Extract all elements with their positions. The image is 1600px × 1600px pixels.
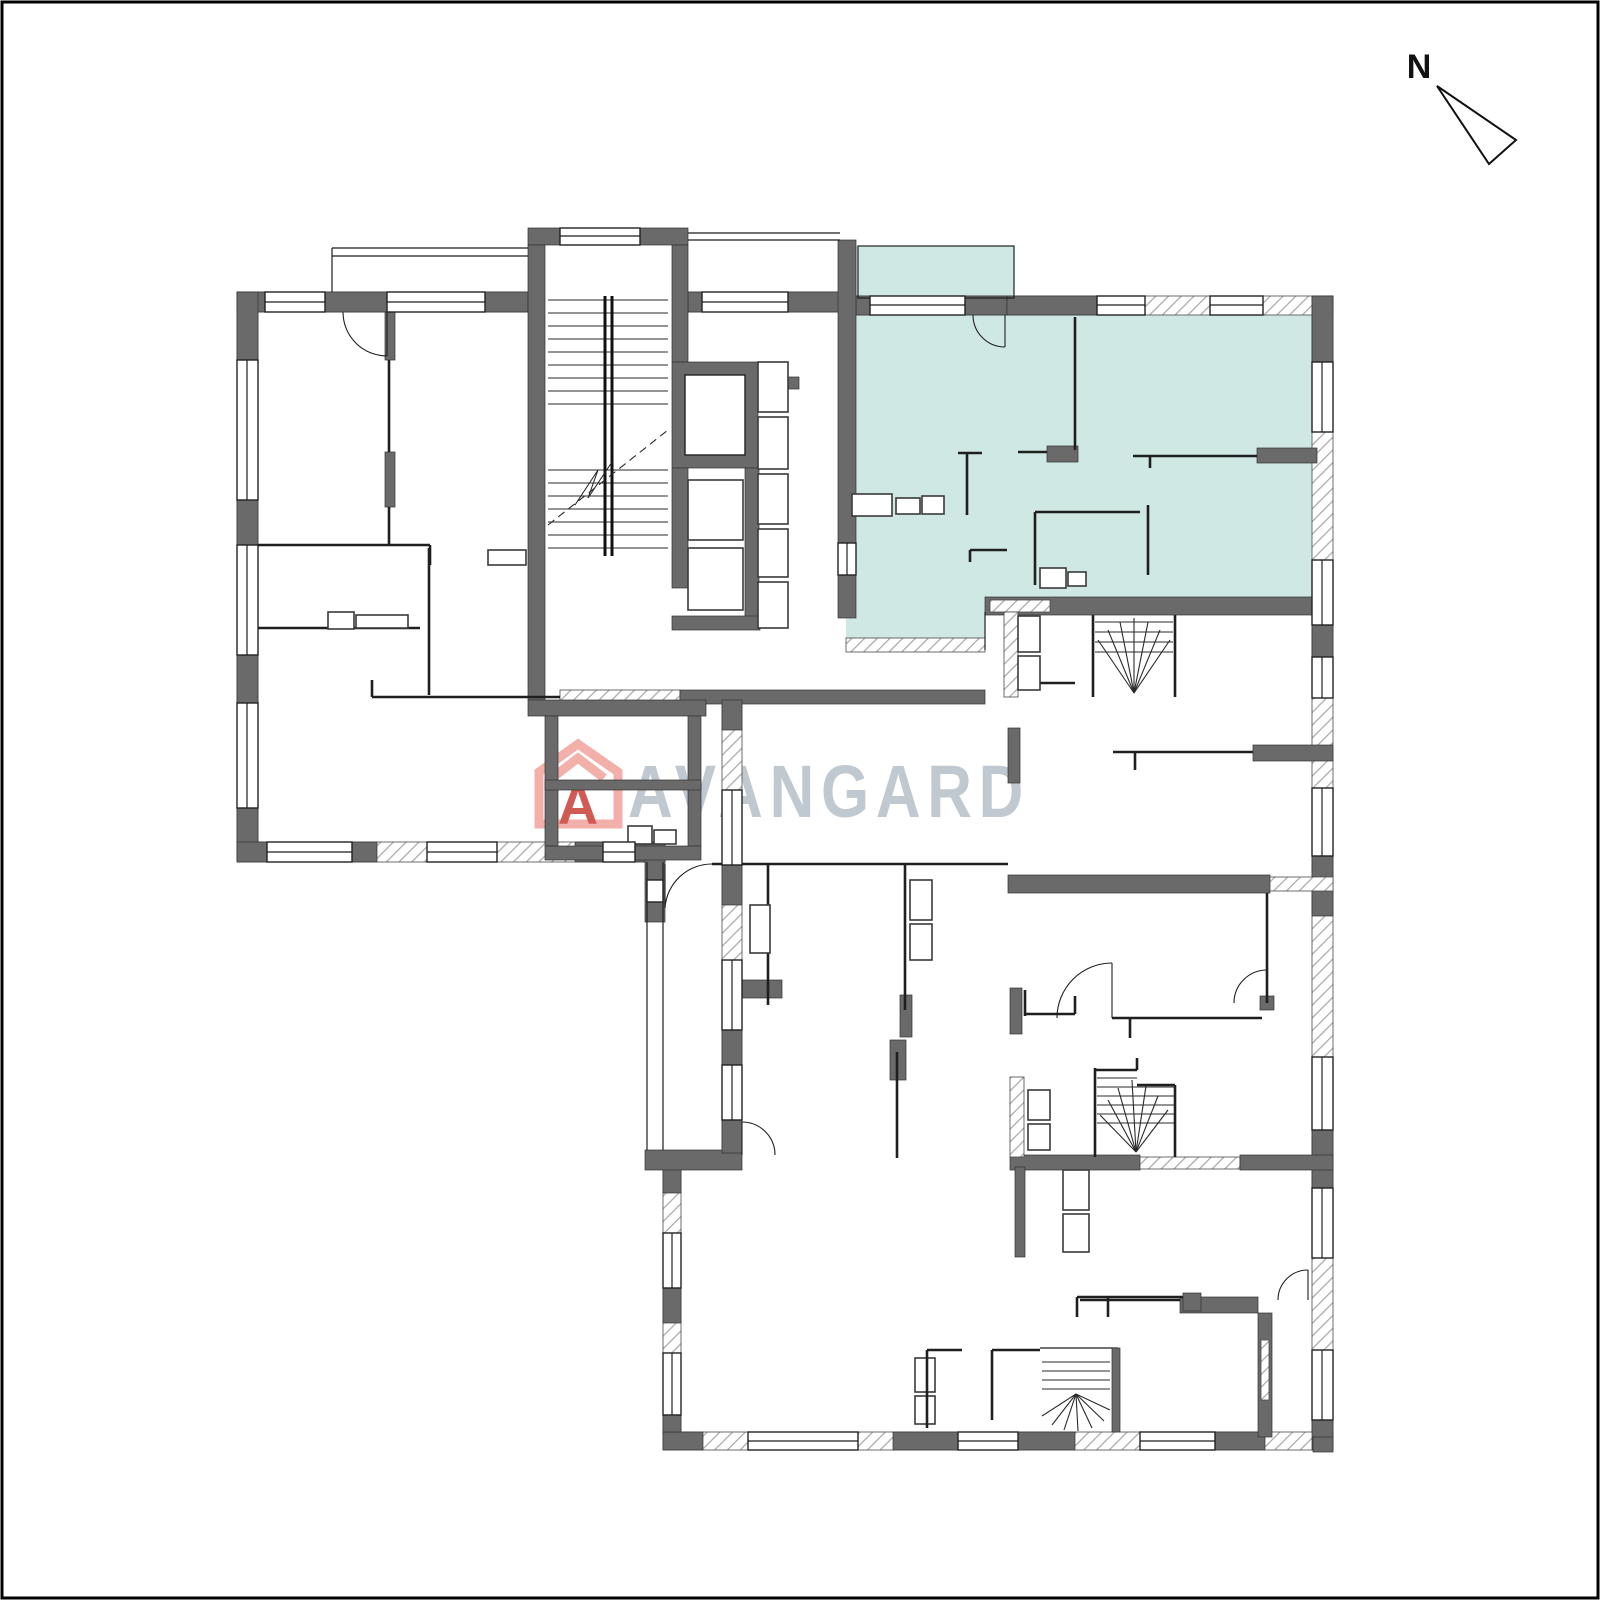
shaft-box xyxy=(688,548,743,610)
highlighted-balcony[interactable] xyxy=(856,246,1014,300)
shaft-box xyxy=(688,480,743,540)
vent-shafts xyxy=(758,362,788,628)
north-label: N xyxy=(1407,48,1432,86)
fixture xyxy=(654,830,676,844)
floor-plan-canvas: A AVANGARD xyxy=(0,0,1600,1600)
elevator-shaft xyxy=(672,362,758,468)
highlighted-notch[interactable] xyxy=(846,600,985,638)
floor-plan-page: A AVANGARD xyxy=(0,0,1600,1600)
fixture xyxy=(628,826,652,844)
